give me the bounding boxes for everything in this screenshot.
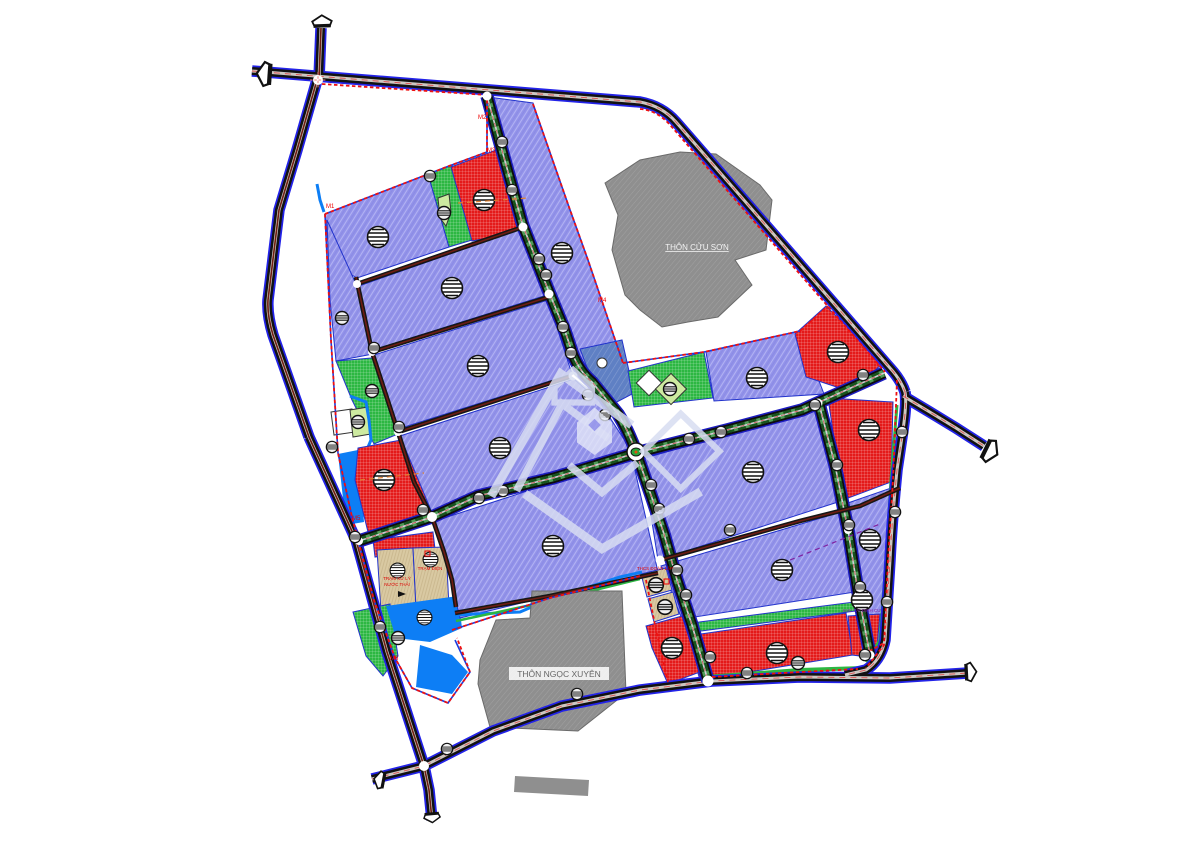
svg-text:TRẠM ĐIỆN: TRẠM ĐIỆN	[418, 564, 443, 571]
svg-text:TRẠM XỬ LÝ: TRẠM XỬ LÝ	[383, 575, 411, 581]
svg-text:THÔN NGỌC XUYÊN: THÔN NGỌC XUYÊN	[517, 669, 601, 679]
svg-text:M6: M6	[390, 656, 399, 662]
svg-text:THCS ĐOÀN LẬP: THCS ĐOÀN LẬP	[637, 565, 673, 571]
svg-text:M3: M3	[487, 148, 496, 154]
svg-text:NƯỚC THẢI: NƯỚC THẢI	[384, 581, 410, 587]
svg-text:M1: M1	[326, 204, 335, 210]
svg-text:THÔN CỬU SƠN: THÔN CỬU SƠN	[665, 243, 729, 252]
svg-text:M4: M4	[598, 298, 607, 304]
svg-text:M2: M2	[478, 115, 487, 121]
svg-text:M5: M5	[352, 516, 361, 522]
svg-text:KHU TÁI ĐỊNH CƯ: KHU TÁI ĐỊNH CƯ	[843, 607, 881, 613]
